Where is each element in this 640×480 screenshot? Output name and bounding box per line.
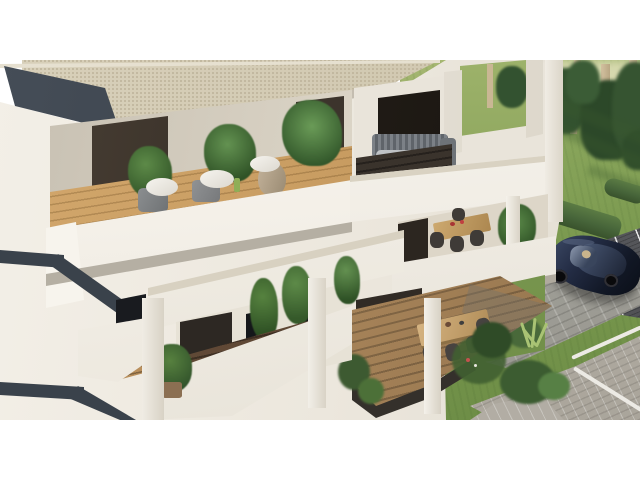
white-column [424,298,441,414]
letterbox-top [0,0,640,60]
dining-chair [430,232,444,248]
render-canvas [0,0,640,480]
potted-palm [282,100,342,166]
table-decor [450,222,455,226]
dining-chair [450,236,464,252]
flower [474,364,477,367]
white-column [142,298,164,420]
tree-trunk [487,64,493,108]
tall-potted-plant [334,256,360,304]
flower [466,358,470,362]
white-column [308,278,326,408]
shrub [472,322,512,358]
conifer-tree [566,60,600,104]
shrub [358,378,384,404]
table-decor [460,220,464,224]
dining-chair [452,208,465,221]
dining-chair [470,230,484,246]
conifer-tree [496,66,528,108]
letterbox-bottom [0,420,640,480]
architectural-render [0,60,640,420]
lounge-cushion [200,170,234,188]
decor-bottle [234,178,240,192]
shrub [538,372,570,400]
lounge-cushion [146,178,178,196]
lounge-cushion [250,156,280,172]
planter-pot [162,382,182,398]
